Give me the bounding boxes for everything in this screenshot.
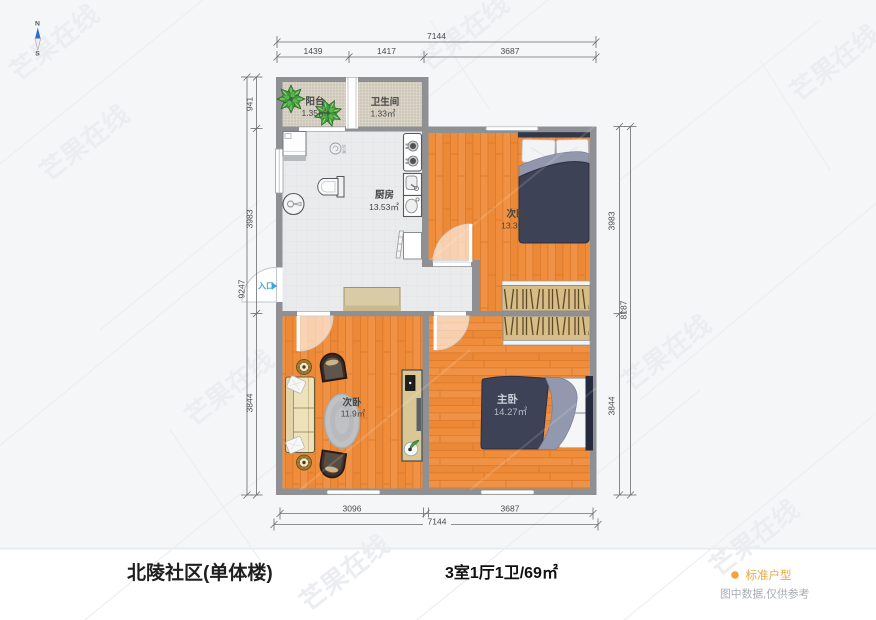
svg-text:图中数据,仅供参考: 图中数据,仅供参考	[720, 587, 810, 601]
svg-text:8187: 8187	[619, 300, 629, 319]
svg-text:3844: 3844	[245, 393, 255, 412]
svg-text:13.35㎡: 13.35㎡	[501, 221, 531, 231]
svg-text:3687: 3687	[501, 504, 520, 514]
svg-text:1.33㎡: 1.33㎡	[370, 109, 396, 119]
svg-text:1417: 1417	[377, 46, 396, 56]
svg-text:次卧: 次卧	[506, 208, 526, 220]
svg-text:厨房: 厨房	[375, 189, 394, 201]
svg-text:卫生间: 卫生间	[371, 96, 400, 108]
svg-text:N: N	[35, 21, 40, 28]
svg-text:入口: 入口	[257, 282, 274, 291]
svg-text:14.27㎡: 14.27㎡	[494, 407, 528, 418]
svg-text:3室1厅1卫/69㎡: 3室1厅1卫/69㎡	[445, 563, 558, 582]
svg-text:941: 941	[245, 97, 255, 111]
svg-text:7144: 7144	[427, 31, 446, 41]
svg-text:北陵社区(单体楼): 北陵社区(单体楼)	[127, 561, 273, 584]
svg-text:主卧: 主卧	[497, 393, 518, 406]
svg-text:1.35㎡: 1.35㎡	[301, 108, 327, 118]
svg-text:阳台: 阳台	[305, 96, 325, 108]
svg-text:漏: 漏	[342, 148, 346, 154]
svg-text:3096: 3096	[343, 504, 362, 514]
svg-text:次卧: 次卧	[342, 397, 362, 409]
svg-text:3844: 3844	[607, 396, 617, 415]
svg-text:3687: 3687	[501, 46, 520, 56]
svg-text:1439: 1439	[304, 46, 323, 56]
svg-text:7144: 7144	[428, 517, 447, 527]
svg-text:3983: 3983	[607, 211, 617, 230]
svg-text:S: S	[35, 51, 40, 58]
svg-text:3983: 3983	[245, 209, 255, 228]
svg-text:13.53㎡: 13.53㎡	[369, 202, 399, 212]
svg-text:11.9㎡: 11.9㎡	[341, 409, 366, 419]
svg-text:9247: 9247	[237, 279, 247, 298]
svg-text:标准户型: 标准户型	[746, 568, 792, 582]
